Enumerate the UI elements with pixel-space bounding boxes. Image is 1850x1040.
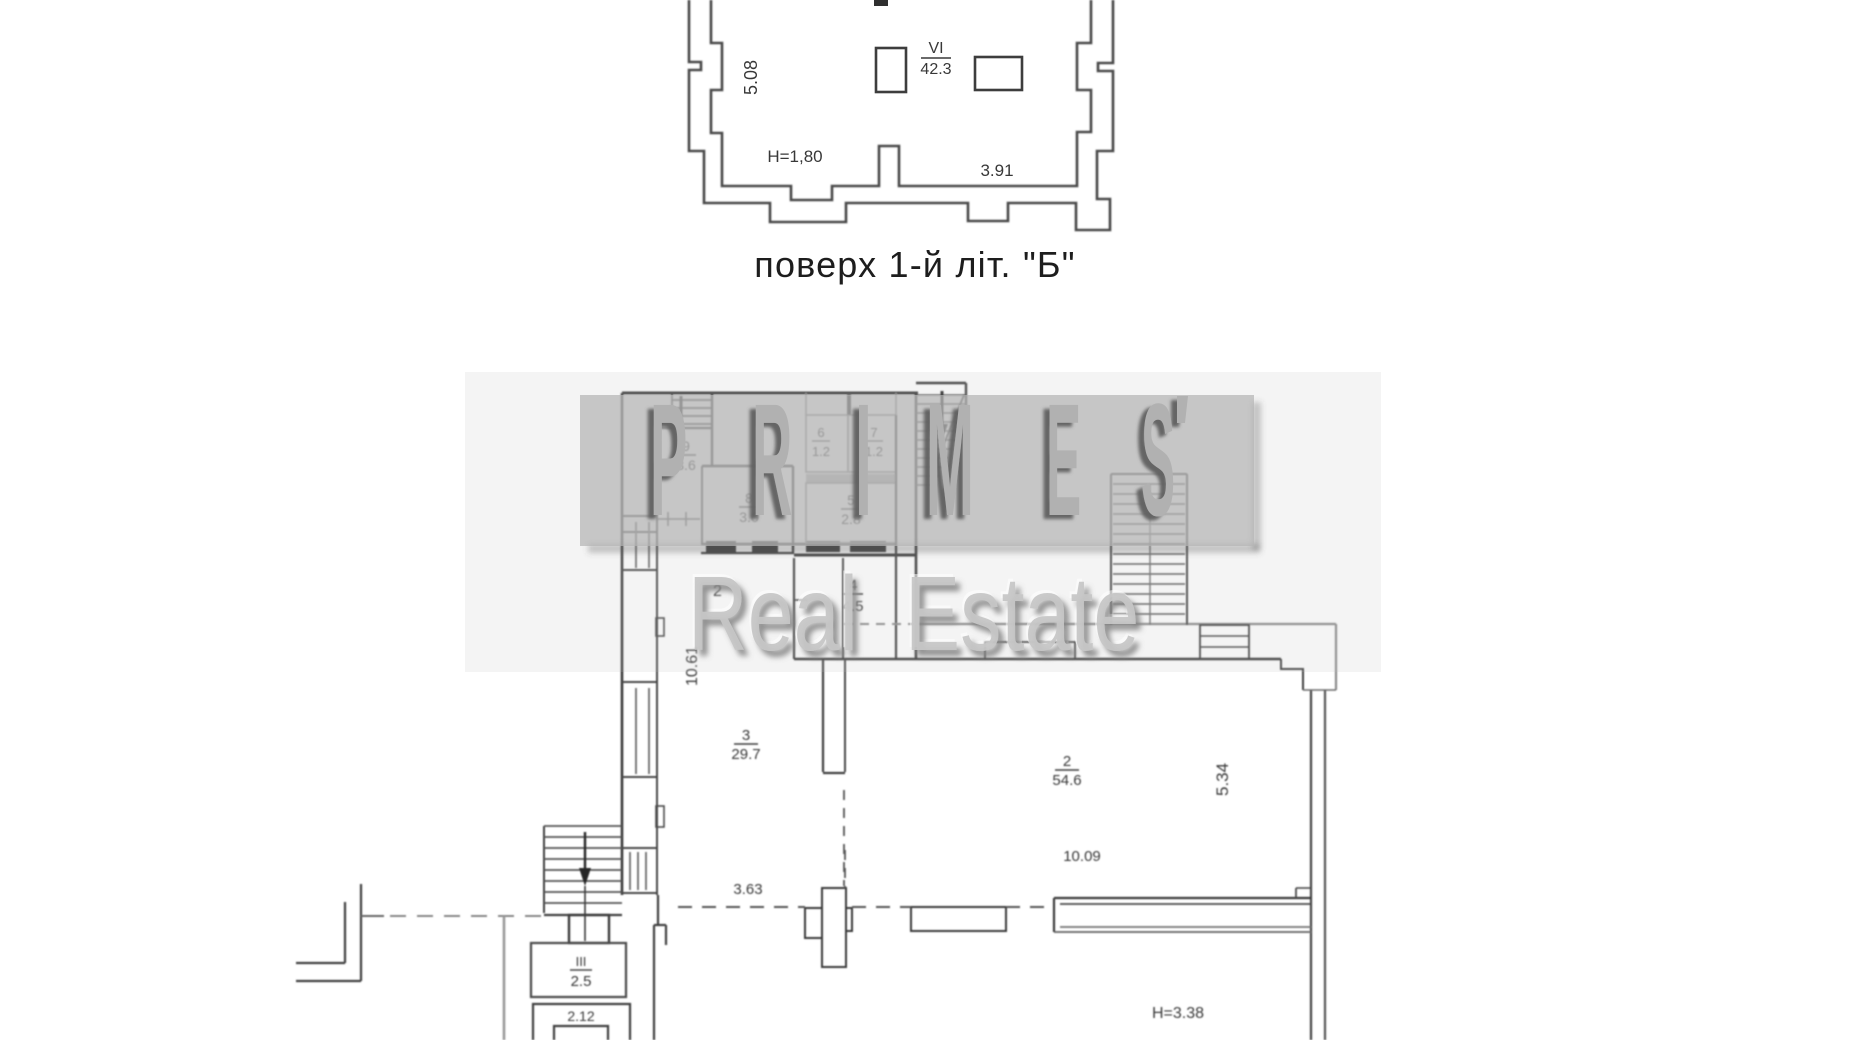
- svg-text:P: P: [650, 371, 687, 550]
- svg-text:E: E: [1046, 371, 1081, 550]
- svg-text:42.3: 42.3: [920, 61, 951, 78]
- svg-text:Real: Real: [688, 555, 858, 673]
- svg-text:3.63: 3.63: [733, 881, 762, 898]
- svg-text:I: I: [855, 370, 872, 550]
- svg-text:поверх 1-й літ. "Б": поверх 1-й літ. "Б": [754, 244, 1076, 285]
- svg-text:H=1,80: H=1,80: [767, 147, 822, 166]
- svg-text:2.5: 2.5: [571, 973, 592, 990]
- svg-text:H=3.38: H=3.38: [1152, 1005, 1204, 1022]
- svg-text:M: M: [926, 371, 974, 549]
- svg-text:54.6: 54.6: [1052, 772, 1081, 789]
- svg-text:R: R: [752, 371, 792, 550]
- svg-text:Estate: Estate: [905, 555, 1139, 673]
- svg-text:VI: VI: [928, 40, 943, 57]
- svg-text:2.12: 2.12: [567, 1008, 594, 1024]
- svg-text:S: S: [1141, 371, 1175, 550]
- svg-text:3.91: 3.91: [980, 161, 1013, 180]
- svg-text:2: 2: [1063, 753, 1071, 770]
- svg-text:5.34: 5.34: [1213, 763, 1232, 796]
- svg-text:III: III: [576, 954, 587, 969]
- svg-text:5.08: 5.08: [741, 60, 761, 95]
- svg-text:3: 3: [742, 727, 750, 744]
- svg-text:29.7: 29.7: [731, 746, 760, 763]
- svg-text:10.09: 10.09: [1063, 848, 1101, 865]
